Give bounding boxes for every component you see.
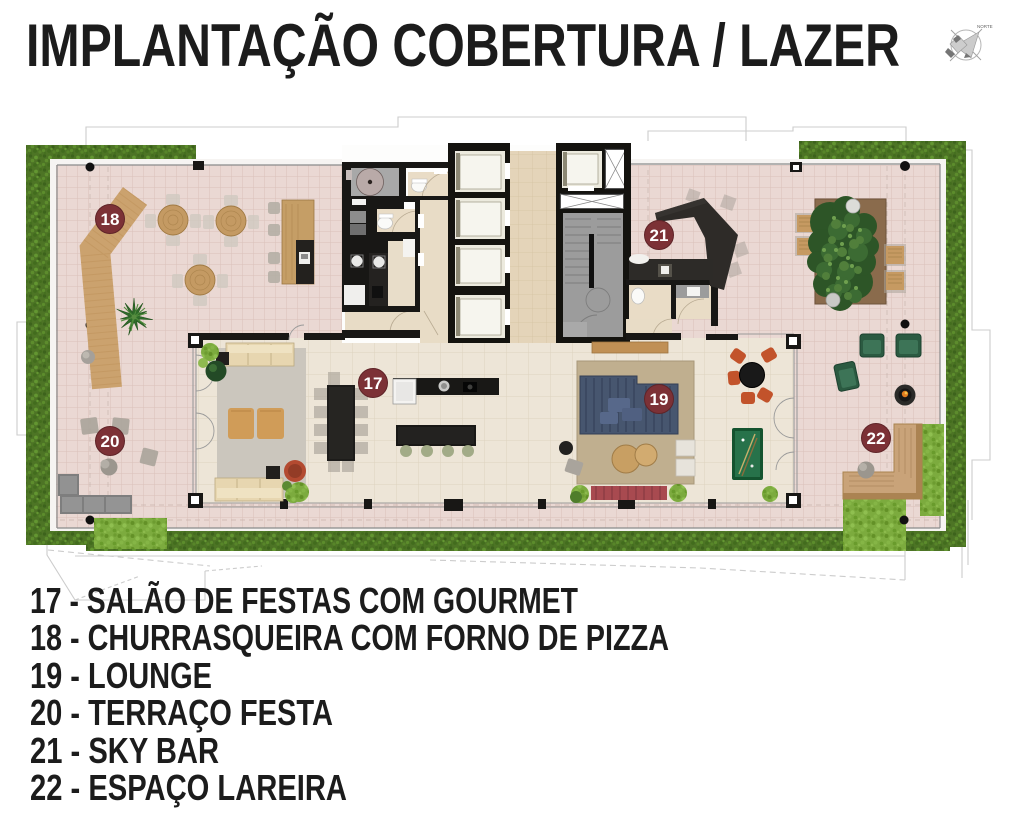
svg-text:20 - TERRAÇO FESTA: 20 - TERRAÇO FESTA xyxy=(30,692,333,733)
svg-text:18 - CHURRASQUEIRA COM FORNO D: 18 - CHURRASQUEIRA COM FORNO DE PIZZA xyxy=(30,617,669,658)
svg-text:20: 20 xyxy=(101,432,120,451)
svg-text:21 - SKY BAR: 21 - SKY BAR xyxy=(30,730,219,771)
svg-text:NORTE: NORTE xyxy=(977,24,993,29)
svg-text:19 - LOUNGE: 19 - LOUNGE xyxy=(30,655,212,696)
svg-text:21: 21 xyxy=(650,226,669,245)
svg-text:17: 17 xyxy=(364,374,383,393)
svg-text:22: 22 xyxy=(867,429,886,448)
svg-text:18: 18 xyxy=(101,210,120,229)
svg-text:IMPLANTAÇÃO COBERTURA / LAZER: IMPLANTAÇÃO COBERTURA / LAZER xyxy=(26,12,900,79)
svg-text:17 - SALÃO DE FESTAS COM GOURM: 17 - SALÃO DE FESTAS COM GOURMET xyxy=(30,579,578,621)
svg-text:19: 19 xyxy=(650,390,669,409)
svg-text:22 - ESPAÇO LAREIRA: 22 - ESPAÇO LAREIRA xyxy=(30,767,347,808)
